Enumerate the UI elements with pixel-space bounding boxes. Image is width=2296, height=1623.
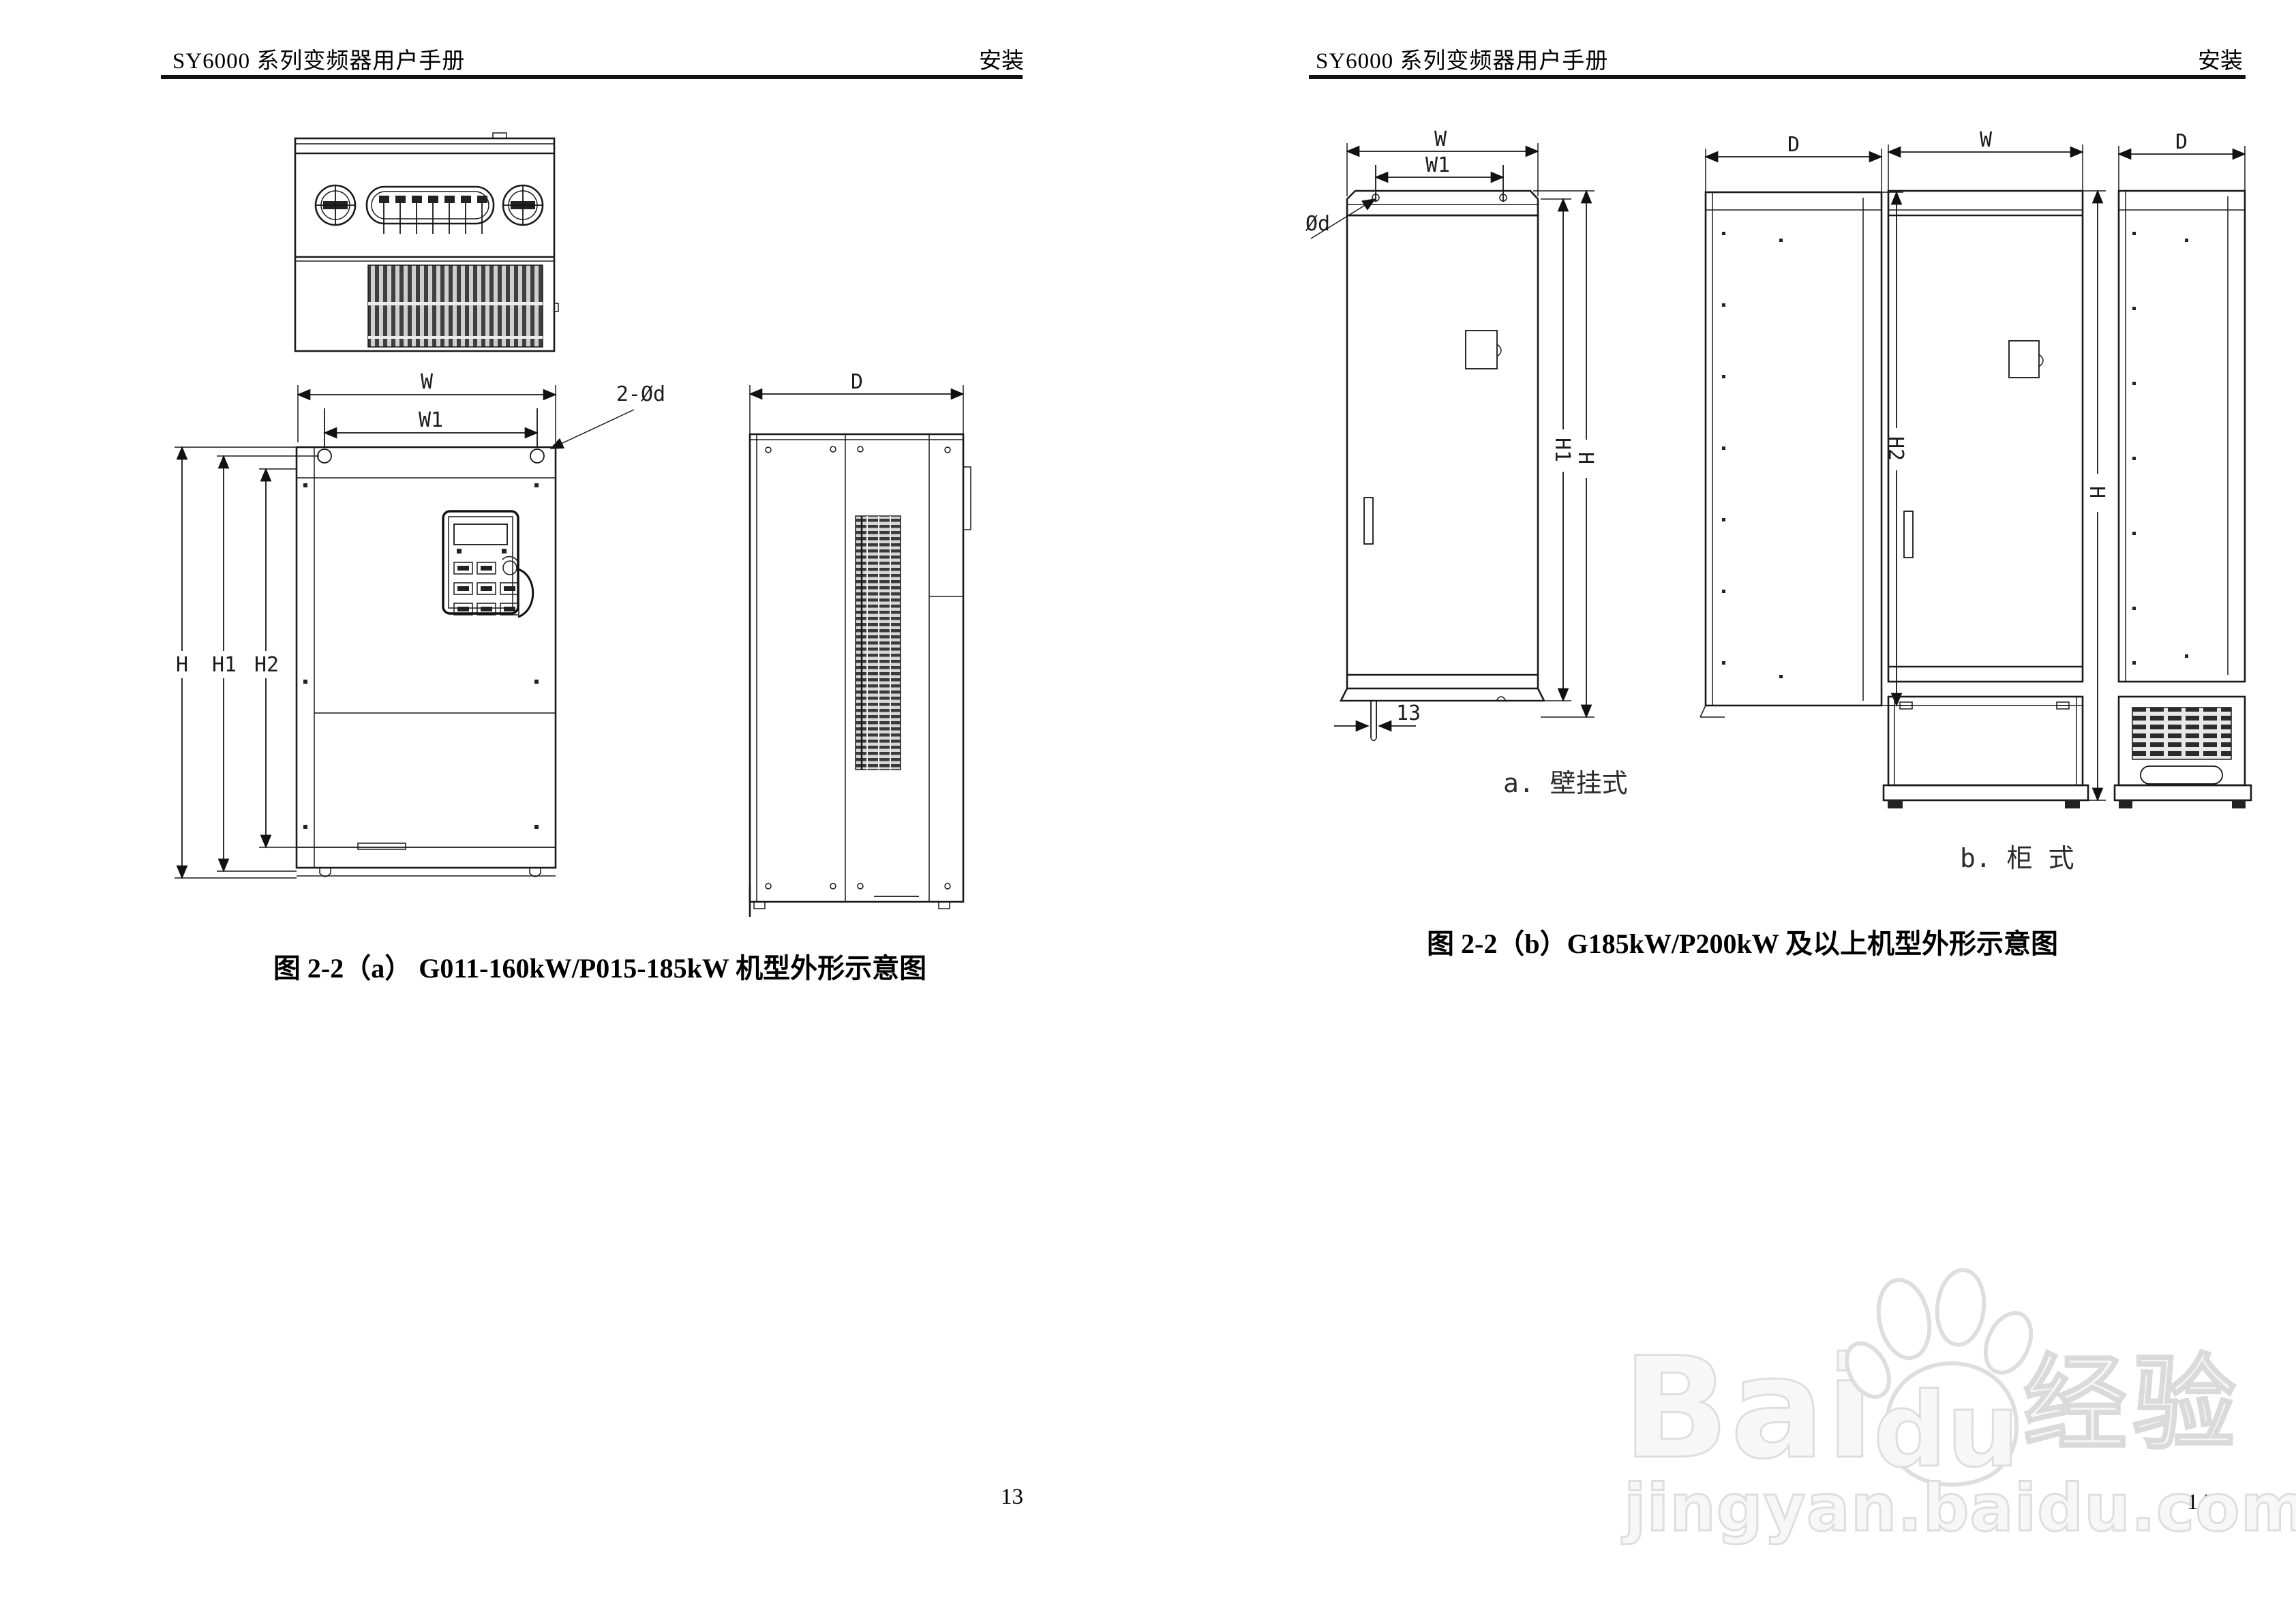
keypad-panel xyxy=(443,511,533,617)
front-body xyxy=(297,447,556,877)
figure-a-caption: 图 2-2（a） G011-160kW/P015-185kW 机型外形示意图 xyxy=(273,946,926,986)
dim-label-d: D xyxy=(2175,130,2188,154)
figure-b-wallmount-front: W W1 Ød xyxy=(1299,130,1694,811)
watermark-bai-text: Bai xyxy=(1622,1328,1875,1490)
page-header-title-right: SY6000 系列变频器用户手册 xyxy=(1316,42,1608,75)
header-rule-right xyxy=(1309,75,2246,79)
dim-W: W xyxy=(1888,128,2083,191)
cabinet-sublabel: b. 柜 式 xyxy=(1960,837,2074,875)
keypad-handle xyxy=(518,569,533,617)
wallmount-side-body xyxy=(1700,192,1882,717)
keypad-knob-icon xyxy=(503,561,517,575)
top-vent-grille xyxy=(368,265,543,347)
figure-a-top-view xyxy=(293,132,559,358)
wallmount-body xyxy=(1341,191,1544,741)
dim-label-w1: W1 xyxy=(419,408,443,432)
screw-terminal-left-icon xyxy=(316,185,355,225)
dim-hole: Ød xyxy=(1305,194,1507,239)
wallmount-sublabel: a. 壁挂式 xyxy=(1503,762,1628,800)
dim-W1: W1 xyxy=(1376,153,1503,202)
dim-label-h: H xyxy=(176,653,188,677)
keypad-display xyxy=(454,524,507,545)
cabinet-side-pedestal xyxy=(2115,697,2251,808)
fan-grille xyxy=(2132,708,2231,759)
dim-label-h1: H1 xyxy=(1550,438,1574,462)
figure-a-front-view: W W1 2-Ød xyxy=(164,370,689,936)
dim-label-2-phi-d: 2-Ød xyxy=(616,382,665,406)
page-header-section-right: 安装 xyxy=(2198,42,2243,75)
handle-slot xyxy=(1364,498,1373,544)
dim-label-d: D xyxy=(851,370,863,394)
dim-label-h1: H1 xyxy=(212,653,237,677)
dim-W1: W1 xyxy=(324,408,537,446)
header-rule-left xyxy=(161,75,1023,79)
dim-label-w: W xyxy=(1434,127,1447,151)
manual-double-page: SY6000 系列变频器用户手册 安装 xyxy=(0,0,2296,1623)
page-header-title-left: SY6000 系列变频器用户手册 xyxy=(172,42,465,75)
dim-label-13: 13 xyxy=(1396,701,1421,725)
dim-label-w: W xyxy=(421,370,434,394)
keypad-cutout xyxy=(2009,341,2039,378)
dim-label-h: H xyxy=(2085,486,2109,498)
dim-label-w1: W1 xyxy=(1425,153,1450,177)
dim-D: D xyxy=(750,370,963,434)
dim-13: 13 xyxy=(1334,701,1421,726)
handle-slot xyxy=(1904,511,1913,558)
heatsink-grille xyxy=(856,516,901,770)
cabinet-front-body xyxy=(1888,191,2083,682)
figure-b-cabinet-side: D xyxy=(2113,130,2260,818)
dim-H1: H1 xyxy=(1541,199,1574,701)
dim-D: D xyxy=(1706,133,1882,192)
page-header-section-left: 安装 xyxy=(979,42,1024,75)
screw-terminal-right-icon xyxy=(503,185,543,225)
keypad-cutout xyxy=(1466,331,1497,369)
dim-label-h2: H2 xyxy=(254,653,279,677)
figure-a-side-view: D xyxy=(738,371,976,927)
dim-label-phi-d: Ød xyxy=(1305,212,1330,236)
cabinet-side-body xyxy=(2119,191,2245,682)
terminal-block xyxy=(367,187,494,234)
dim-H: H xyxy=(2083,191,2109,800)
page-number-left: 13 xyxy=(1001,1485,1023,1510)
watermark-jingyan-text: 经验 xyxy=(2023,1320,2241,1470)
dim-D: D xyxy=(2119,130,2245,191)
dim-label-w: W xyxy=(1980,128,1993,152)
cabinet-pedestal xyxy=(1884,697,2088,808)
dim-label-d: D xyxy=(1787,133,1800,157)
baidu-jingyan-watermark: Bai du 经验 jingyan.baidu.com xyxy=(1622,1268,2246,1602)
figure-b-cabinet-front: W H xyxy=(1878,130,2117,818)
watermark-url-text: jingyan.baidu.com xyxy=(1624,1471,2296,1546)
figure-b-caption: 图 2-2（b）G185kW/P200kW 及以上机型外形示意图 xyxy=(1427,922,2058,961)
dim-label-h: H xyxy=(1573,452,1597,464)
cable-slot xyxy=(2141,766,2222,784)
dim-H2: H2 xyxy=(252,469,297,847)
